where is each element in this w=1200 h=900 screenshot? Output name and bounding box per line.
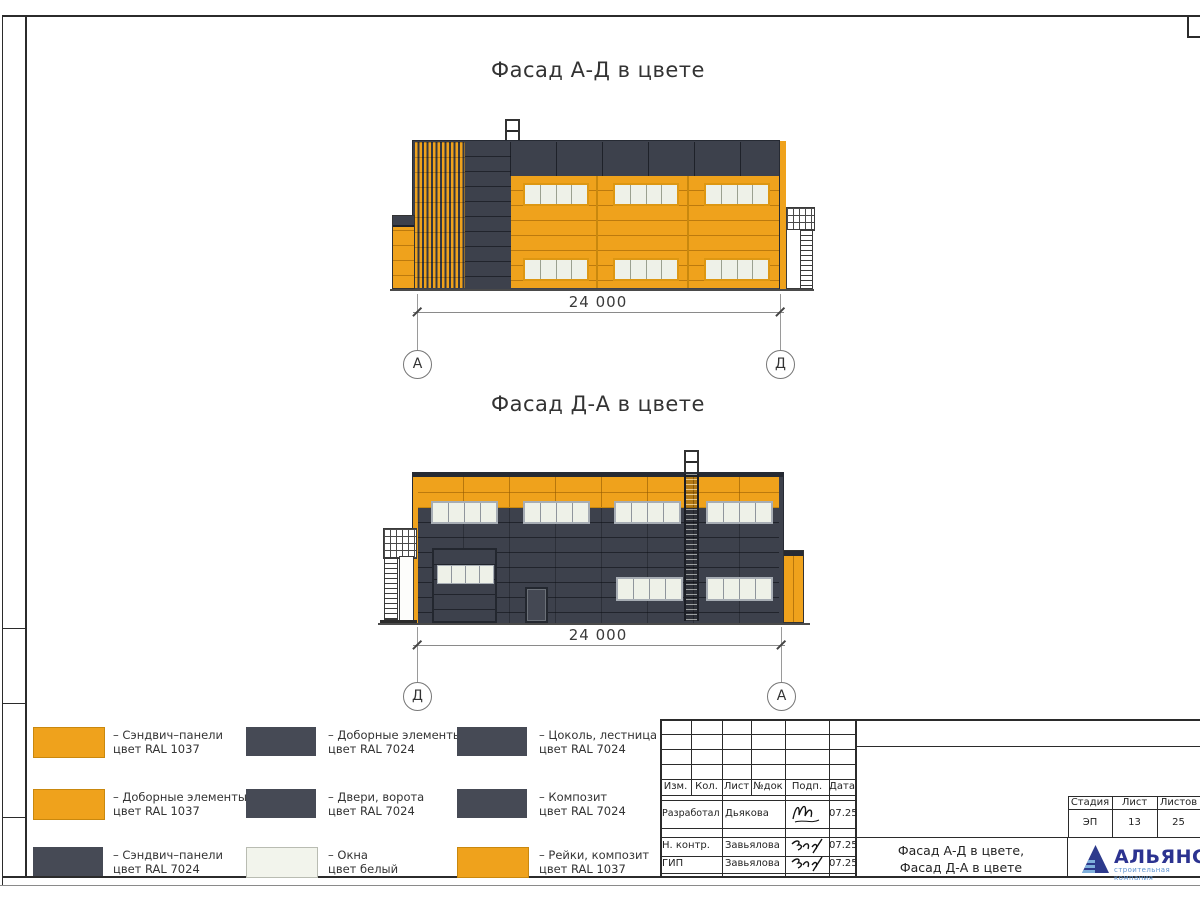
facade-ad-window (613, 258, 679, 281)
doc-title-line2: Фасад Д-А в цвете (855, 860, 1067, 875)
facade-da-gate (432, 548, 497, 623)
facade-ad-title: Фасад А-Д в цвете (398, 58, 798, 82)
legend-label: – Доборные элементы (113, 790, 247, 804)
margin-cell-divider-1 (2, 628, 26, 629)
stage-label: Стадия (1068, 797, 1112, 808)
facade-da-title: Фасад Д-А в цвете (398, 392, 798, 416)
facade-ad-window (704, 258, 770, 281)
stamp-date: 07.25 (829, 808, 855, 819)
facade-ad-slat-wall (415, 142, 465, 288)
frame-top-line (2, 15, 1200, 17)
axis-marker-d-top: Д (766, 350, 795, 379)
facade-ad-dimension-text: 24 000 (498, 293, 698, 311)
alyans-logo-icon (1082, 845, 1109, 873)
legend-label: – Окна (328, 848, 368, 862)
axis-marker-a-top: А (403, 350, 432, 379)
axis-marker-d-bottom: Д (403, 682, 432, 711)
alyans-logo-subtitle: строительная компания (1114, 866, 1200, 882)
sheets-label: Листов (1157, 797, 1200, 808)
legend-swatch (33, 847, 103, 876)
legend-label: – Цоколь, лестница (539, 728, 657, 742)
sheet-label: Лист (1112, 797, 1157, 808)
facade-ad-stair (786, 229, 813, 289)
facade-da-stair-railing (383, 528, 417, 559)
legend-swatch (457, 727, 527, 756)
legend-label: – Сэндвич–панели (113, 728, 223, 742)
frame-left-inner-line (25, 15, 27, 878)
legend-swatch (246, 727, 316, 756)
facade-da-window (706, 577, 773, 601)
facade-ad-right-strip (779, 141, 786, 289)
signature (789, 856, 827, 873)
alyans-logo-name: АЛЬЯНС (1114, 846, 1200, 868)
stamp-name: Дьякова (725, 808, 769, 819)
sheet-value: 13 (1112, 817, 1157, 828)
margin-cell-divider-3 (2, 817, 26, 818)
facade-da-stair-door (399, 556, 414, 621)
axis-marker-a-bottom: А (767, 682, 796, 711)
facade-da-door (525, 587, 548, 623)
facade-ad-dark-wall (465, 142, 511, 288)
legend-label: – Рейки, композит (539, 848, 649, 862)
stamp-col-izm: Изм. (660, 781, 691, 792)
facade-ad-ground-line (390, 289, 814, 291)
facade-da-fire-ladder (684, 474, 699, 621)
stamp-role: ГИП (662, 858, 683, 869)
legend-swatch (33, 789, 105, 820)
drawing-sheet-page: { "colors": { "orange_ral_1037": "#efa21… (0, 0, 1200, 900)
stamp-role: Разработал (662, 808, 720, 819)
stamp-col-list: Лист (722, 781, 751, 792)
facade-ad-parapet-band (465, 142, 779, 176)
stamp-col-ndok: №док (751, 781, 785, 792)
legend-swatch (457, 789, 527, 818)
stamp-col-podp: Подп. (785, 781, 829, 792)
legend-label: – Доборные элементы (328, 728, 462, 742)
legend-swatch (33, 727, 105, 758)
margin-cell-divider-2 (2, 703, 26, 704)
facade-da-stair-stringer (384, 557, 398, 620)
stamp-name: Завьялова (725, 840, 780, 851)
legend-label: – Композит (539, 790, 607, 804)
stamp-role: Н. контр. (662, 840, 710, 851)
facade-da-window (616, 577, 683, 601)
facade-da-roof-ladder-top (684, 450, 699, 474)
facade-da-window (706, 501, 773, 524)
legend-swatch (246, 789, 316, 818)
facade-ad-window (523, 258, 589, 281)
legend-label: – Сэндвич–панели (113, 848, 223, 862)
stamp-name: Завьялова (725, 858, 780, 869)
facade-ad-annex (392, 215, 415, 289)
facade-ad-stair-railing (786, 207, 815, 231)
facade-da-dimension-text: 24 000 (498, 626, 698, 644)
facade-da-ground-line (378, 623, 810, 625)
frame-left-outer-line (2, 15, 3, 886)
facade-ad-window (613, 183, 679, 206)
stamp-col-data: Дата (829, 781, 855, 792)
facade-da-gate-window (437, 565, 494, 584)
legend-swatch (457, 847, 529, 878)
facade-da-window (431, 501, 498, 524)
frame-bottom-line (2, 876, 1200, 878)
signature (789, 801, 827, 827)
facade-ad-window (704, 183, 770, 206)
sheets-value: 25 (1157, 817, 1200, 828)
facade-ad-roof-vent (505, 119, 520, 142)
facade-da-dimension-line (413, 645, 785, 646)
facade-da-window (614, 501, 681, 524)
legend-label: – Двери, ворота (328, 790, 424, 804)
frame-corner-box (1187, 16, 1200, 38)
doc-title-line1: Фасад А-Д в цвете, (855, 843, 1067, 858)
stage-value: ЭП (1068, 817, 1112, 828)
facade-da-window (523, 501, 590, 524)
signature (789, 838, 827, 855)
legend-swatch (246, 847, 318, 878)
facade-da-annex (783, 550, 804, 623)
facade-ad-dimension-line (413, 312, 784, 313)
stamp-date: 07.25 (829, 858, 855, 869)
stamp-col-kol: Кол. (691, 781, 722, 792)
facade-ad-window (523, 183, 589, 206)
stamp-date: 07.25 (829, 840, 855, 851)
sheet-bottom-edge (0, 885, 1200, 886)
